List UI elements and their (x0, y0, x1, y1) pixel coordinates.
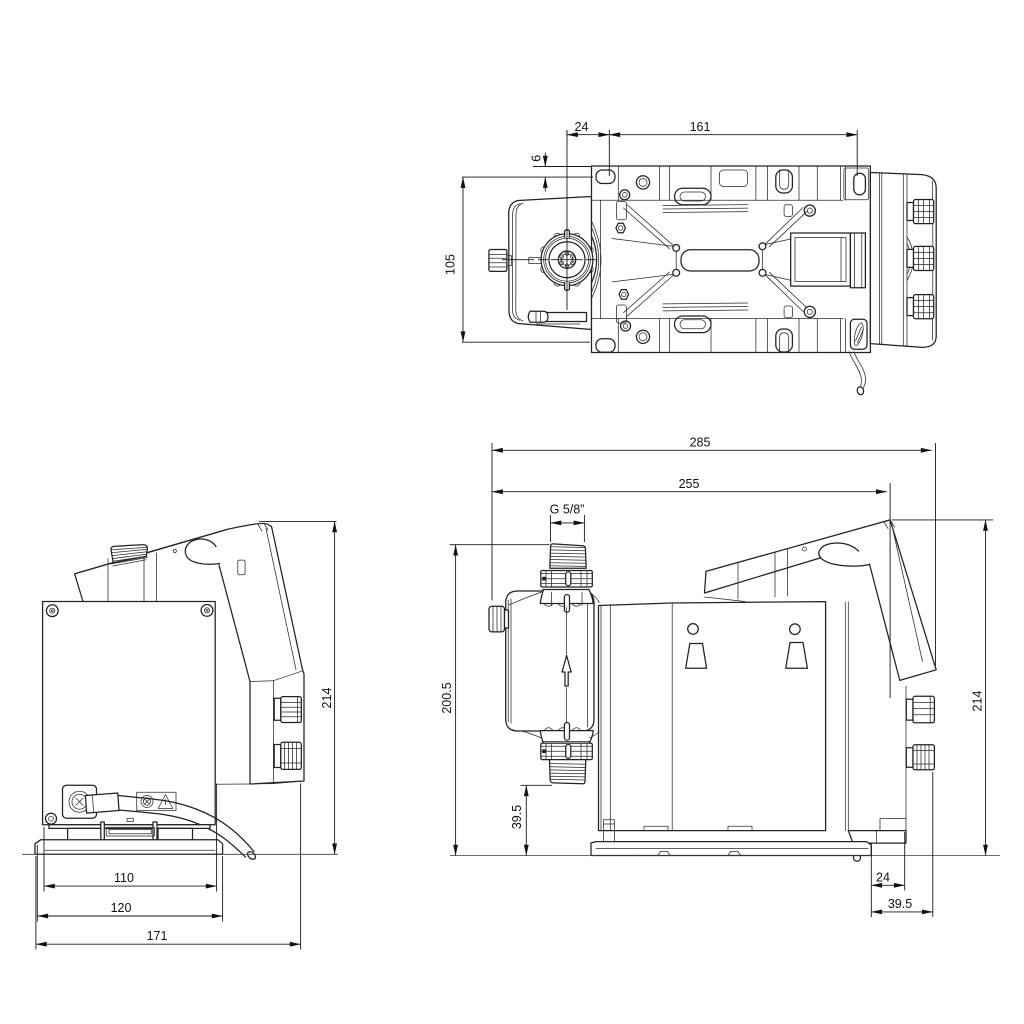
svg-text:39.5: 39.5 (510, 805, 524, 829)
svg-text:255: 255 (679, 477, 700, 491)
svg-text:105: 105 (444, 254, 458, 275)
svg-text:G 5/8”: G 5/8” (550, 503, 585, 517)
svg-text:39.5: 39.5 (888, 897, 912, 911)
svg-text:285: 285 (690, 436, 711, 450)
svg-text:24: 24 (575, 120, 589, 134)
svg-text:214: 214 (971, 691, 985, 712)
svg-text:214: 214 (320, 688, 334, 709)
svg-text:110: 110 (114, 871, 134, 885)
svg-text:6: 6 (529, 155, 543, 162)
svg-text:171: 171 (147, 929, 168, 943)
svg-text:120: 120 (111, 901, 132, 915)
svg-text:24: 24 (876, 871, 890, 885)
svg-text:161: 161 (690, 120, 711, 134)
svg-text:200.5: 200.5 (440, 682, 454, 713)
